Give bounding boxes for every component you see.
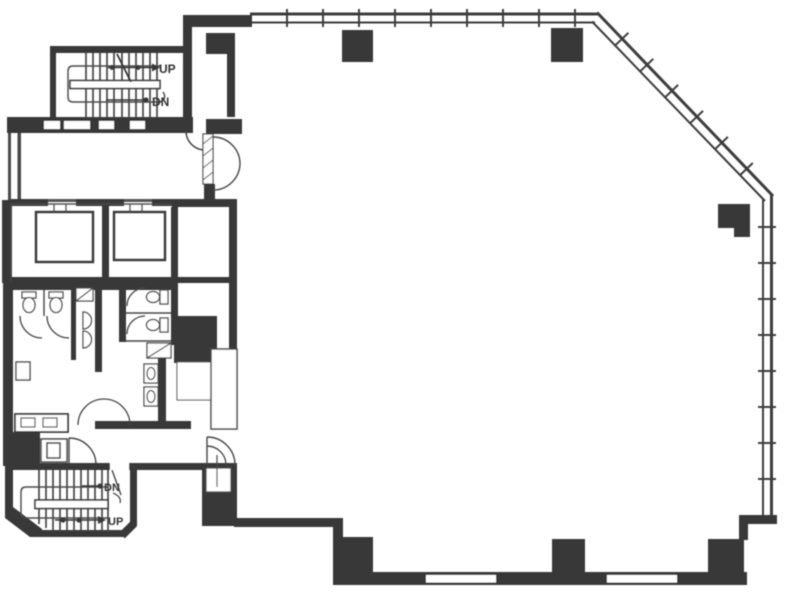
svg-text:DN: DN: [104, 482, 120, 494]
svg-text:UP: UP: [159, 62, 176, 76]
svg-text:UP: UP: [108, 516, 123, 528]
